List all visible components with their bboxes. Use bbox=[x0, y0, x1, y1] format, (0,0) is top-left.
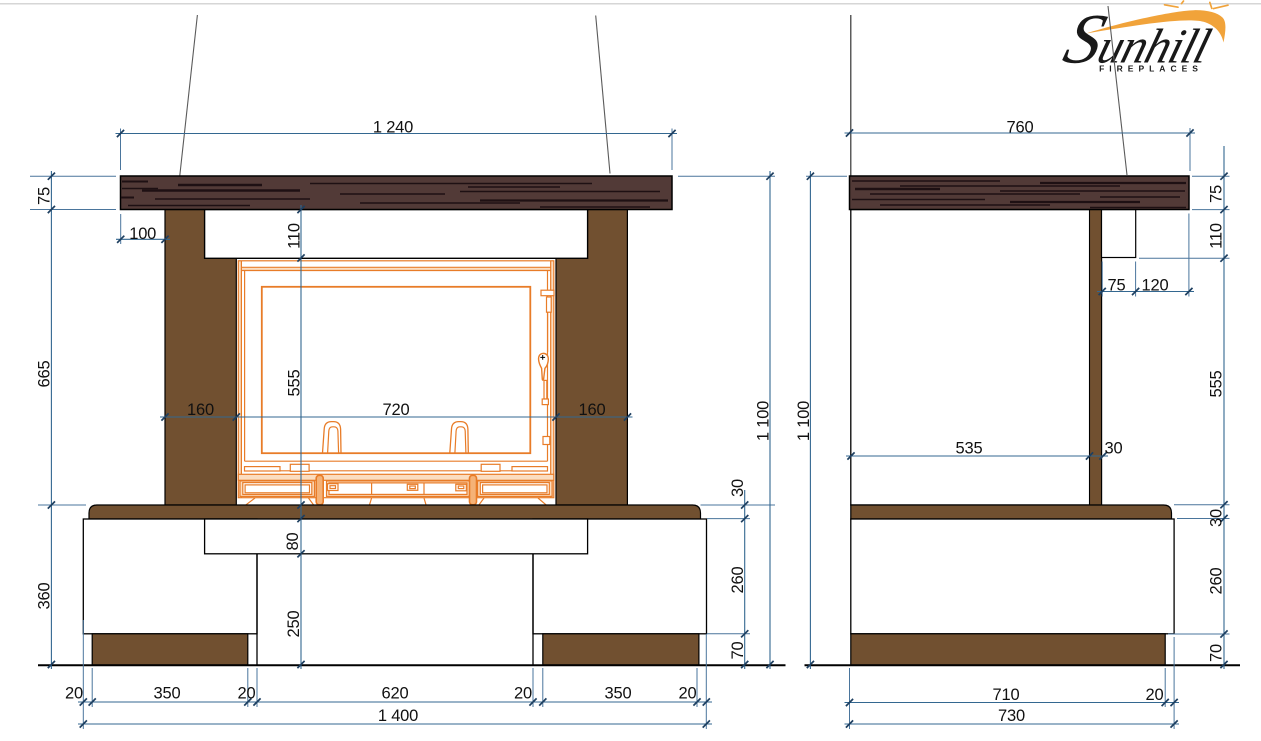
svg-text:20: 20 bbox=[238, 684, 256, 702]
svg-text:360: 360 bbox=[36, 583, 54, 610]
svg-text:100: 100 bbox=[129, 225, 156, 243]
svg-text:1 240: 1 240 bbox=[373, 119, 413, 137]
svg-text:555: 555 bbox=[1208, 371, 1226, 398]
svg-text:70: 70 bbox=[729, 642, 747, 660]
svg-text:75: 75 bbox=[36, 187, 54, 205]
svg-text:75: 75 bbox=[1208, 185, 1226, 203]
svg-text:30: 30 bbox=[729, 479, 747, 497]
svg-text:555: 555 bbox=[286, 370, 304, 397]
svg-text:110: 110 bbox=[286, 223, 304, 249]
svg-text:260: 260 bbox=[729, 567, 747, 594]
svg-text:760: 760 bbox=[1007, 119, 1034, 137]
svg-text:20: 20 bbox=[679, 684, 697, 702]
svg-text:1 400: 1 400 bbox=[378, 707, 418, 725]
svg-text:260: 260 bbox=[1208, 568, 1226, 595]
svg-text:160: 160 bbox=[579, 401, 606, 419]
svg-text:30: 30 bbox=[1208, 509, 1226, 527]
svg-text:1 100: 1 100 bbox=[755, 401, 773, 441]
svg-text:250: 250 bbox=[285, 611, 303, 638]
svg-text:20: 20 bbox=[514, 684, 532, 702]
svg-text:720: 720 bbox=[383, 401, 410, 419]
svg-text:70: 70 bbox=[1208, 644, 1226, 662]
svg-text:1 100: 1 100 bbox=[795, 401, 813, 441]
svg-text:110: 110 bbox=[1208, 223, 1226, 249]
svg-text:350: 350 bbox=[154, 684, 181, 702]
svg-text:160: 160 bbox=[187, 401, 214, 419]
svg-text:665: 665 bbox=[36, 361, 54, 388]
svg-text:20: 20 bbox=[65, 684, 83, 702]
svg-text:350: 350 bbox=[605, 684, 632, 702]
svg-text:120: 120 bbox=[1142, 277, 1169, 295]
svg-text:30: 30 bbox=[1105, 440, 1123, 458]
svg-text:620: 620 bbox=[382, 684, 409, 702]
svg-text:710: 710 bbox=[993, 686, 1020, 704]
svg-text:75: 75 bbox=[1108, 277, 1126, 295]
svg-text:20: 20 bbox=[1146, 686, 1164, 704]
svg-text:80: 80 bbox=[284, 533, 302, 551]
svg-text:535: 535 bbox=[956, 440, 983, 458]
svg-text:730: 730 bbox=[998, 707, 1025, 725]
